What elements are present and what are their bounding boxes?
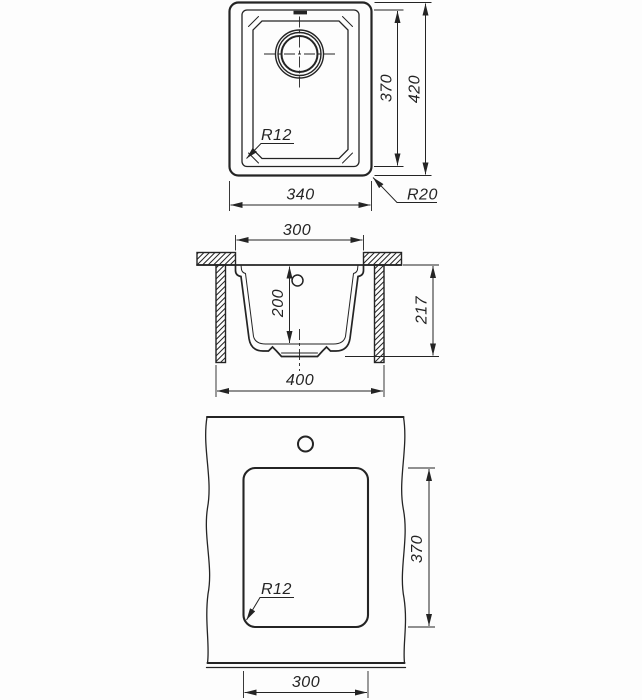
- dim-label-r12-top: R12: [261, 127, 292, 144]
- cutout-view: 370 300 R12: [206, 417, 435, 698]
- bowl-profile-outer: [236, 265, 364, 357]
- dim-label-r20: R20: [407, 187, 438, 204]
- dim-label-400: 400: [286, 372, 314, 389]
- cabinet-panel-right: [375, 265, 385, 363]
- dim-label-217: 217: [414, 295, 431, 325]
- dim-label-r12-cutout: R12: [261, 581, 292, 598]
- countertop-section-right: [364, 253, 402, 266]
- section-view: 300 200 217 400: [197, 222, 439, 397]
- overflow-slot: [294, 11, 308, 15]
- cutout-outline: [244, 468, 369, 627]
- drain-circle: [264, 17, 336, 91]
- cabinet-panel-left: [216, 265, 226, 363]
- panel-break-edge-right: [402, 417, 406, 663]
- countertop-section-left: [197, 253, 236, 266]
- dim-label-340: 340: [286, 187, 314, 204]
- dim-label-300-cutout: 300: [292, 674, 320, 691]
- top-view-bowl-opening: [242, 10, 359, 167]
- sink-drawing-svg: 370 420 340 R12 R20: [0, 0, 642, 700]
- technical-drawing-page: 370 420 340 R12 R20: [0, 0, 642, 700]
- dim-section-height: 217: [345, 265, 439, 357]
- radius-label-cutout-r12: R12: [247, 581, 295, 620]
- dim-label-370-cutout: 370: [409, 535, 426, 563]
- panel-break-edge-left: [206, 417, 210, 663]
- top-view-outer-outline: [230, 3, 372, 176]
- dim-section-base-width: 400: [216, 365, 384, 397]
- faucet-hole: [298, 437, 313, 452]
- dim-label-300-section: 300: [283, 222, 311, 239]
- dim-section-top-width: 300: [236, 222, 364, 251]
- radius-label-top-r20: R20: [373, 178, 438, 204]
- dim-top-width: 340: [230, 181, 372, 211]
- dim-section-depth: 200: [270, 267, 290, 344]
- dim-label-370-top: 370: [379, 74, 396, 102]
- dim-cutout-height: 370: [408, 468, 435, 627]
- dim-cutout-width: 300: [244, 671, 369, 698]
- dim-label-200: 200: [270, 289, 287, 318]
- dim-label-420: 420: [407, 75, 424, 103]
- dim-top-bowl-height: 370: [374, 10, 404, 167]
- overflow-hole: [292, 275, 303, 286]
- top-view: 370 420 340 R12 R20: [230, 3, 438, 212]
